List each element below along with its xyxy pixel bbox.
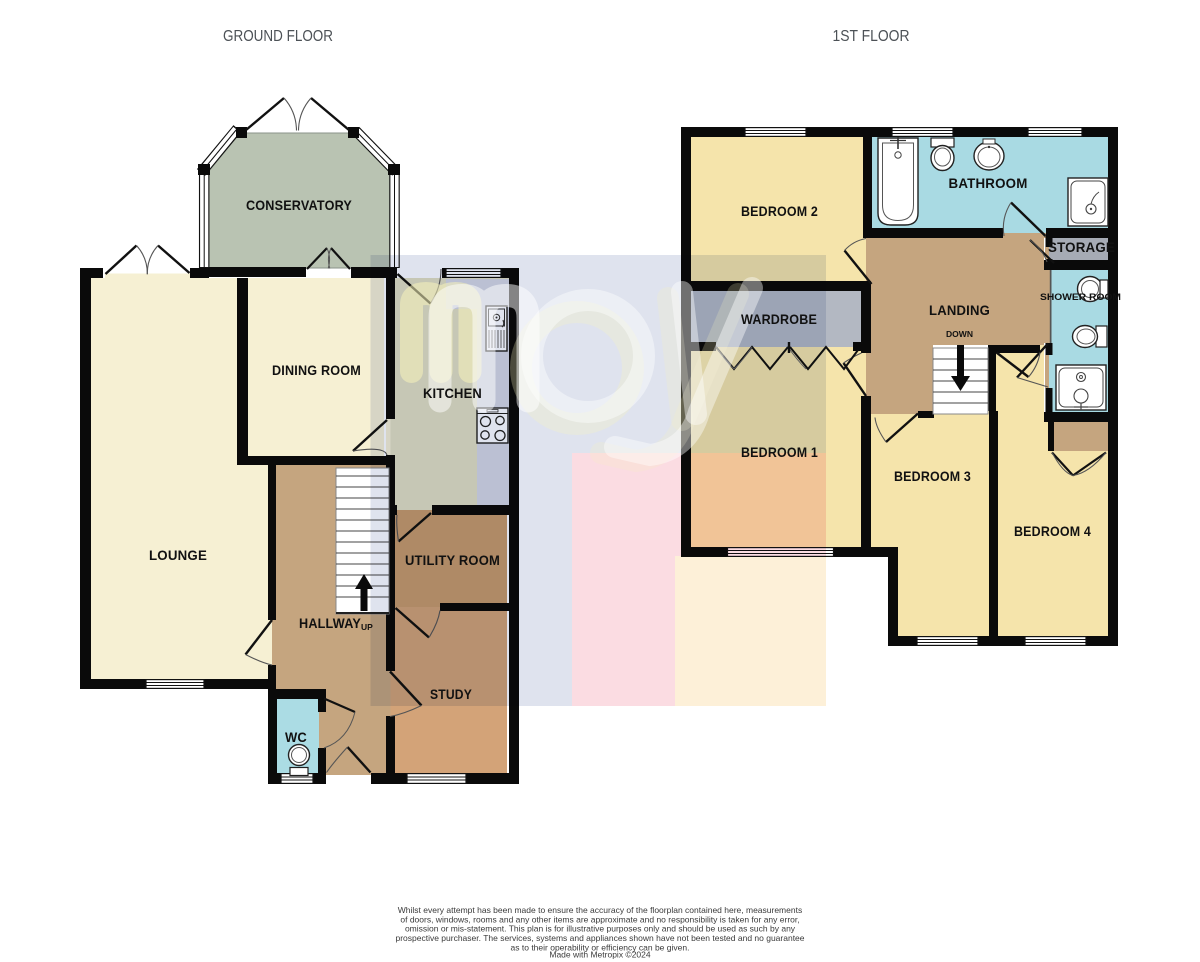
svg-text:UP: UP [361,622,373,632]
svg-text:BEDROOM 3: BEDROOM 3 [894,468,971,484]
svg-text:1ST FLOOR: 1ST FLOOR [833,28,910,45]
svg-text:WC: WC [285,729,307,745]
svg-text:STORAGE: STORAGE [1048,239,1115,255]
svg-text:BEDROOM 2: BEDROOM 2 [741,203,818,219]
svg-text:Made with Metropix ©2024: Made with Metropix ©2024 [549,950,651,960]
svg-text:WARDROBE: WARDROBE [741,311,817,327]
svg-text:SHOWER ROOM: SHOWER ROOM [1040,292,1121,303]
svg-text:CONSERVATORY: CONSERVATORY [246,197,352,213]
svg-text:DOWN: DOWN [946,329,973,339]
svg-text:BATHROOM: BATHROOM [949,175,1028,191]
svg-text:GROUND FLOOR: GROUND FLOOR [223,28,333,45]
svg-text:LANDING: LANDING [929,302,990,318]
svg-text:STUDY: STUDY [430,686,472,702]
svg-text:BEDROOM 4: BEDROOM 4 [1014,523,1091,539]
svg-text:DINING ROOM: DINING ROOM [272,362,361,378]
svg-text:LOUNGE: LOUNGE [149,547,207,563]
svg-text:UTILITY ROOM: UTILITY ROOM [405,552,500,568]
svg-text:HALLWAY: HALLWAY [299,615,361,631]
svg-text:BEDROOM 1: BEDROOM 1 [741,444,818,460]
svg-text:KITCHEN: KITCHEN [423,385,482,401]
